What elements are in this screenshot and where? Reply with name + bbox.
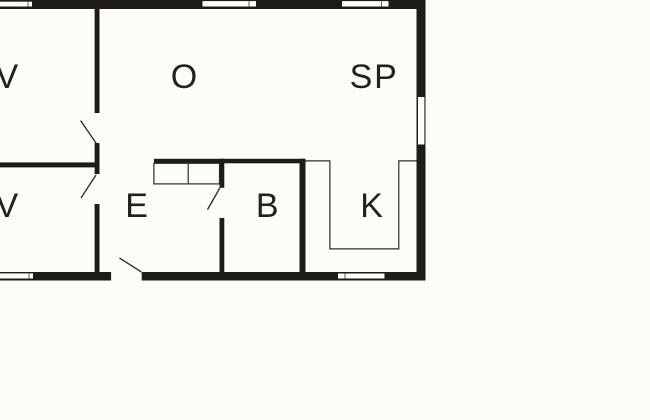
svg-text:SP: SP	[350, 58, 399, 96]
svg-text:B: B	[256, 187, 279, 225]
svg-text:E: E	[125, 187, 148, 225]
svg-text:V: V	[0, 187, 19, 225]
svg-text:V: V	[0, 58, 19, 96]
svg-text:O: O	[171, 58, 197, 96]
svg-text:K: K	[360, 187, 383, 225]
